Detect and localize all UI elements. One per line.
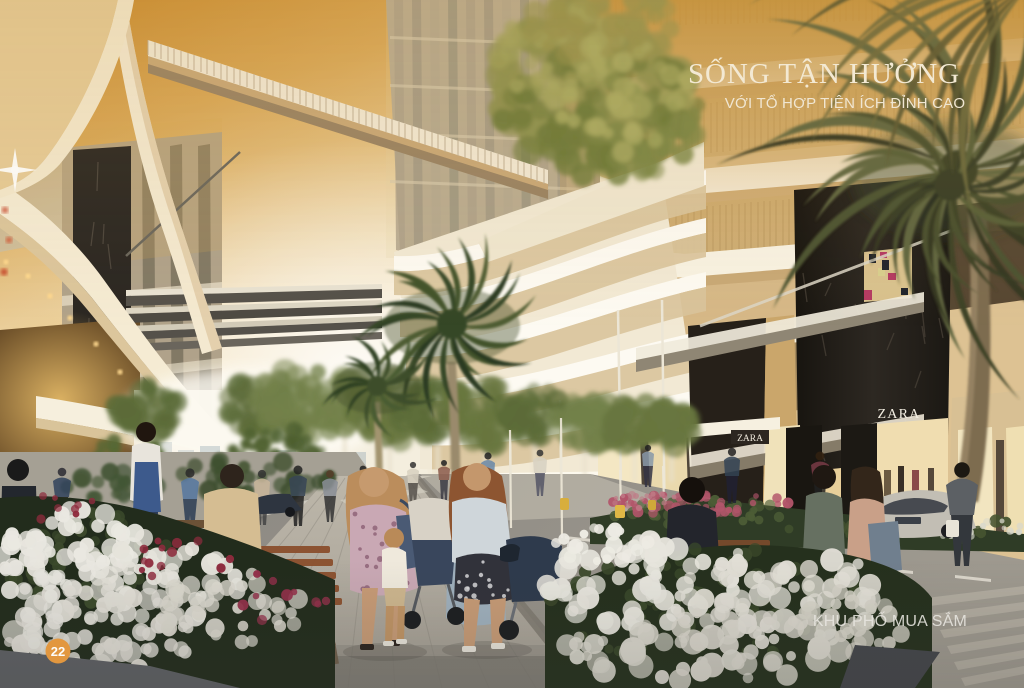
svg-text:KHU PHỐ MUA SẮM: KHU PHỐ MUA SẮM <box>813 610 967 630</box>
svg-text:VỚI TỔ HỢP TIỆN ÍCH ĐỈNH CAO: VỚI TỔ HỢP TIỆN ÍCH ĐỈNH CAO <box>725 94 966 112</box>
svg-text:22: 22 <box>51 644 65 659</box>
svg-text:SỐNG TẬN HƯỞNG: SỐNG TẬN HƯỞNG <box>688 56 960 90</box>
svg-text:ZARA: ZARA <box>737 434 763 444</box>
svg-text:ZARA: ZARA <box>878 407 921 422</box>
